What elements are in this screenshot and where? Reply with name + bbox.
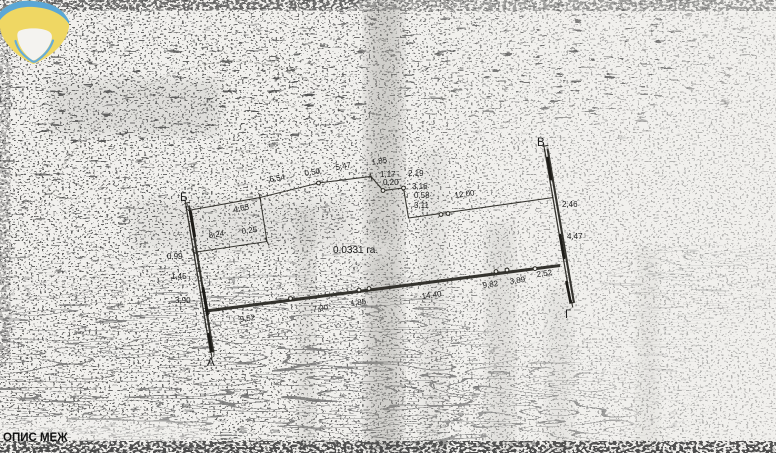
svg-text:ОПИС МЕЖ: ОПИС МЕЖ — [3, 432, 68, 444]
svg-text:1,45: 1,45 — [171, 272, 187, 281]
svg-text:0,99: 0,99 — [167, 252, 183, 261]
svg-text:А: А — [207, 357, 215, 369]
svg-text:2,19: 2,19 — [408, 169, 424, 178]
svg-text:Г: Г — [565, 309, 572, 321]
svg-text:В: В — [537, 137, 545, 149]
svg-text:Б: Б — [180, 192, 188, 204]
svg-text:0,0331 га.: 0,0331 га. — [333, 245, 378, 256]
svg-text:3,16: 3,16 — [412, 182, 428, 191]
svg-text:2,46: 2,46 — [562, 200, 578, 209]
svg-text:3,90: 3,90 — [175, 296, 191, 305]
svg-text:0,20: 0,20 — [383, 178, 399, 187]
svg-text:0,58: 0,58 — [414, 191, 430, 200]
svg-text:3,11: 3,11 — [414, 201, 430, 210]
svg-text:4,47: 4,47 — [567, 232, 583, 241]
